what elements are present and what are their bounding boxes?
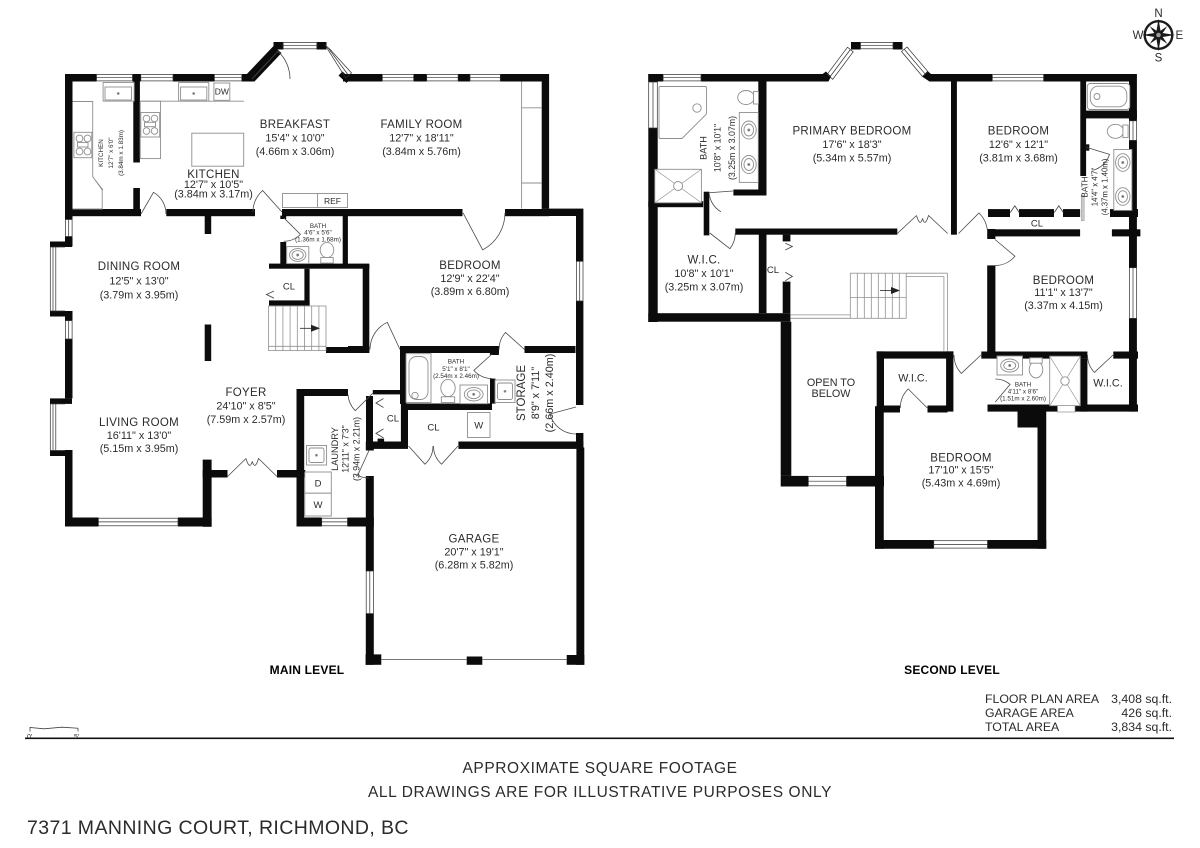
svg-text:PRIMARY BEDROOM: PRIMARY BEDROOM [792,126,911,138]
svg-text:8'9" x 7'11": 8'9" x 7'11" [530,367,542,420]
svg-text:W: W [314,500,323,511]
svg-text:FLOOR PLAN AREA: FLOOR PLAN AREA [985,692,1100,706]
svg-text:W.I.C.: W.I.C. [687,255,720,267]
svg-text:DW: DW [215,87,229,97]
svg-text:SECOND LEVEL: SECOND LEVEL [904,663,1000,677]
svg-text:5'1" x 8'1": 5'1" x 8'1" [442,366,470,373]
svg-text:(3.79m x 3.95m): (3.79m x 3.95m) [100,290,179,302]
svg-text:(4.66m x 3.06m): (4.66m x 3.06m) [256,146,335,158]
svg-text:BATH: BATH [1015,382,1032,389]
svg-text:(5.15m x 3.95m): (5.15m x 3.95m) [100,443,179,455]
svg-text:BEDROOM: BEDROOM [1033,275,1095,287]
svg-text:20'7" x 19'1": 20'7" x 19'1" [444,547,503,559]
svg-text:DINING ROOM: DINING ROOM [98,261,181,273]
svg-text:(3.89m x 6.80m): (3.89m x 6.80m) [431,286,510,298]
svg-text:(5.43m x 4.69m): (5.43m x 4.69m) [922,478,1001,490]
svg-text:BEDROOM: BEDROOM [439,260,501,272]
svg-text:10'8" x 10'1": 10'8" x 10'1" [674,268,733,280]
svg-text:GARAGE: GARAGE [448,534,499,546]
svg-text:CL: CL [767,265,779,276]
svg-text:(3.84m x 3.17m): (3.84m x 3.17m) [174,189,253,201]
svg-text:(5.34m x 5.57m): (5.34m x 5.57m) [813,153,892,165]
svg-text:LAUNDRY: LAUNDRY [330,427,340,471]
svg-text:17'10" x 15'5": 17'10" x 15'5" [928,465,993,477]
svg-text:(7.59m x 2.57m): (7.59m x 2.57m) [207,414,286,426]
svg-text:7371 MANNING COURT, RICHMOND,: 7371 MANNING COURT, RICHMOND, BC [27,817,409,839]
svg-text:APPROXIMATE SQUARE FOOTAGE: APPROXIMATE SQUARE FOOTAGE [462,760,737,777]
svg-text:KITCHEN: KITCHEN [98,139,105,167]
svg-text:CL: CL [283,282,295,293]
svg-text:15'4" x 10'0": 15'4" x 10'0" [265,133,324,145]
svg-text:CL: CL [387,414,399,425]
svg-text:(2.54m x 2.46m): (2.54m x 2.46m) [433,373,479,380]
svg-text:FOYER: FOYER [225,387,266,399]
svg-text:BATH: BATH [699,136,709,160]
svg-text:(4.37m x 1.40m): (4.37m x 1.40m) [1101,158,1110,215]
svg-text:BATH: BATH [1081,176,1090,197]
svg-text:(3.25m x 3.07m): (3.25m x 3.07m) [665,282,744,294]
svg-text:(3.81m x 3.68m): (3.81m x 3.68m) [979,153,1058,165]
svg-text:12'6" x 12'1": 12'6" x 12'1" [989,139,1048,151]
svg-text:(2.66m x 2.40m): (2.66m x 2.40m) [544,354,556,433]
svg-text:(3.84m x 1.83m): (3.84m x 1.83m) [118,130,125,176]
svg-text:S: S [1155,53,1163,65]
svg-text:17'6" x 18'3": 17'6" x 18'3" [822,139,881,151]
svg-text:MAIN LEVEL: MAIN LEVEL [270,663,345,677]
svg-text:14'4" x 4'7": 14'4" x 4'7" [1091,168,1100,207]
svg-text:GARAGE AREA: GARAGE AREA [985,706,1075,720]
svg-text:BELOW: BELOW [812,388,852,400]
svg-text:(3.25m x 3.07m): (3.25m x 3.07m) [727,116,737,180]
svg-text:BEDROOM: BEDROOM [930,453,992,465]
svg-text:(1.51m x 2.60m): (1.51m x 2.60m) [1000,396,1046,403]
svg-text:12'5" x 13'0": 12'5" x 13'0" [109,276,168,288]
svg-text:ALL DRAWINGS ARE FOR ILLUSTRAT: ALL DRAWINGS ARE FOR ILLUSTRATIVE PURPOS… [368,784,832,801]
svg-text:W: W [474,421,483,432]
svg-text:3,408 sq.ft.: 3,408 sq.ft. [1111,692,1172,706]
svg-text:3,834 sq.ft.: 3,834 sq.ft. [1111,720,1172,734]
svg-text:W.I.C.: W.I.C. [898,373,927,385]
svg-text:12'11" x 7'3": 12'11" x 7'3" [341,425,351,473]
svg-text:10'8" x 10'1": 10'8" x 10'1" [713,124,723,172]
svg-text:426 sq.ft.: 426 sq.ft. [1121,706,1172,720]
svg-text:(3.94m x 2.21m): (3.94m x 2.21m) [352,417,362,481]
svg-text:(3.37m x 4.15m): (3.37m x 4.15m) [1024,300,1103,312]
svg-text:11'1" x 13'7": 11'1" x 13'7" [1034,287,1093,299]
svg-text:BREAKFAST: BREAKFAST [260,119,330,131]
svg-text:LIVING ROOM: LIVING ROOM [99,417,179,429]
svg-text:D: D [315,479,322,490]
svg-text:CL: CL [1031,219,1043,230]
svg-text:REF: REF [324,196,341,206]
svg-text:12'7" x 18'11": 12'7" x 18'11" [389,133,454,145]
svg-text:(1.36m x 1.68m): (1.36m x 1.68m) [295,236,341,243]
svg-text:(6.28m x 5.82m): (6.28m x 5.82m) [435,560,514,572]
svg-text:24'10" x 8'5": 24'10" x 8'5" [216,401,275,413]
svg-text:W: W [1133,30,1144,42]
svg-text:W.I.C.: W.I.C. [1093,378,1122,390]
svg-text:(3.84m x 5.76m): (3.84m x 5.76m) [382,146,461,158]
svg-text:BEDROOM: BEDROOM [988,126,1050,138]
svg-text:16'11" x 13'0": 16'11" x 13'0" [107,430,172,442]
svg-text:12'9" x 22'4": 12'9" x 22'4" [440,273,499,285]
svg-text:STORAGE: STORAGE [516,365,528,421]
svg-text:N: N [1154,8,1162,20]
svg-text:FAMILY ROOM: FAMILY ROOM [380,119,462,131]
svg-text:12'7" x 6'0": 12'7" x 6'0" [108,137,115,168]
svg-text:BATH: BATH [448,359,465,366]
svg-text:TOTAL AREA: TOTAL AREA [985,720,1060,734]
svg-text:E: E [1175,30,1183,42]
svg-text:4'11" x 8'6": 4'11" x 8'6" [1008,389,1039,396]
svg-text:CL: CL [427,423,439,434]
